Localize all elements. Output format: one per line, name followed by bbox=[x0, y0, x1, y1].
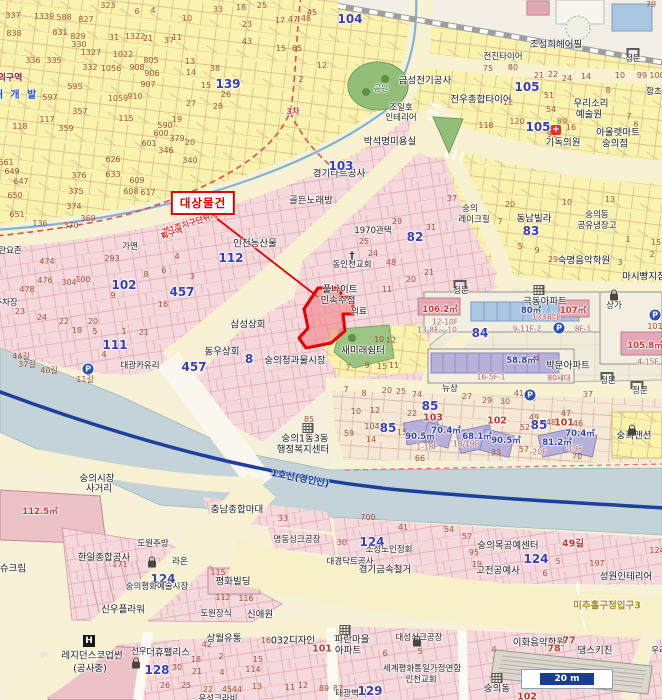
highlight-layer bbox=[0, 0, 662, 700]
scale-bar-label: 20 m bbox=[539, 672, 594, 687]
target-parcel-highlight[interactable] bbox=[299, 288, 353, 348]
callout-leader-line bbox=[211, 214, 318, 297]
target-callout-box: 대상물건 bbox=[171, 191, 235, 215]
map-canvas[interactable]: 3238271339337588838831829330311322132710… bbox=[0, 0, 662, 700]
scale-bar: 20 m bbox=[521, 669, 613, 689]
